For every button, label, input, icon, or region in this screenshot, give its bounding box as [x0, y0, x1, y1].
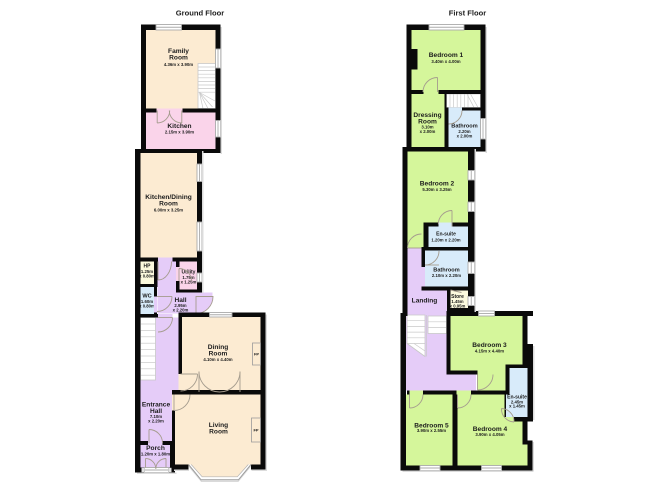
svg-text:3.40m x 4.00m: 3.40m x 4.00m: [431, 59, 460, 64]
svg-text:x 0.80m: x 0.80m: [139, 304, 155, 309]
svg-text:3.90m x 2.55m: 3.90m x 2.55m: [417, 428, 446, 433]
svg-text:1.20m x 1.80m: 1.20m x 1.80m: [141, 451, 170, 456]
svg-text:x 2.20m: x 2.20m: [148, 419, 164, 424]
svg-text:Room: Room: [159, 201, 178, 208]
svg-text:4.15m x 4.40m: 4.15m x 4.40m: [475, 349, 504, 354]
svg-text:1.20m x 2.20m: 1.20m x 2.20m: [431, 238, 460, 243]
svg-text:3.90m x 4.05m: 3.90m x 4.05m: [475, 432, 504, 437]
svg-text:FP: FP: [253, 428, 258, 433]
svg-text:2.15m x 3.90m: 2.15m x 3.90m: [165, 130, 194, 135]
svg-text:Room: Room: [169, 55, 188, 62]
svg-text:4.10m x 4.40m: 4.10m x 4.40m: [203, 357, 232, 362]
svg-text:4.36m x 3.90m: 4.36m x 3.90m: [164, 62, 193, 67]
svg-text:5.30m x 3.25m: 5.30m x 3.25m: [422, 187, 451, 192]
svg-text:Bedroom 1: Bedroom 1: [429, 52, 464, 59]
svg-text:First Floor: First Floor: [449, 9, 487, 18]
svg-text:2.10m x 2.20m: 2.10m x 2.20m: [432, 273, 461, 278]
svg-text:x 1.45m: x 1.45m: [509, 404, 525, 409]
svg-text:x 2.00m: x 2.00m: [420, 129, 436, 134]
svg-text:x 2.20m: x 2.20m: [173, 308, 189, 313]
svg-text:FP: FP: [254, 352, 259, 357]
svg-text:Ground Floor: Ground Floor: [176, 9, 225, 18]
svg-text:x 1.25m: x 1.25m: [181, 280, 197, 285]
svg-text:6.00m x 3.25m: 6.00m x 3.25m: [154, 208, 183, 213]
svg-text:Landing: Landing: [412, 298, 438, 305]
svg-text:x 2.00m: x 2.00m: [457, 134, 473, 139]
svg-text:x 0.95m: x 0.95m: [450, 304, 466, 309]
svg-text:Room: Room: [209, 429, 228, 436]
svg-text:x 0.80m: x 0.80m: [139, 274, 155, 279]
